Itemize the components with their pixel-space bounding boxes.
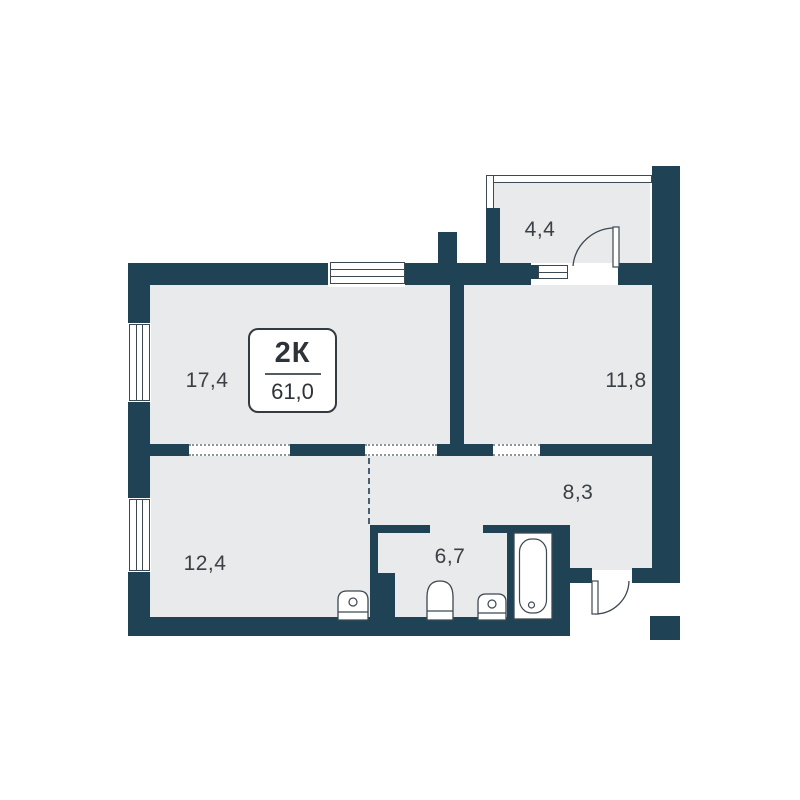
door-swing-arc [573,228,616,266]
room-area-label-bathroom: 6,7 [435,545,466,569]
bathtub [514,533,552,619]
room-area-label-balcony: 4,4 [525,218,556,242]
door-leaf [613,227,619,267]
room-area-label-hallway: 8,3 [563,481,594,505]
total-area-label: 61,0 [250,379,335,405]
toilet [427,581,453,620]
entrance-door [592,581,629,614]
room-area-label-bedroom: 11,8 [605,369,646,393]
door-swing-arc [595,581,629,614]
room-area-label-kitchen: 12,4 [184,552,227,576]
door-leaf [592,581,598,614]
floor-plan: 17,4 11,8 12,4 8,3 6,7 4,4 2К 61,0 [0,0,800,800]
plan-type-badge: 2К 61,0 [248,328,337,413]
badge-divider [265,373,321,375]
kitchen-sink [338,591,368,620]
sink [478,594,506,620]
balcony-door [573,227,619,267]
plan-type-label: 2К [250,337,335,370]
symbols-layer [0,0,800,800]
room-area-label-living: 17,4 [186,369,229,393]
